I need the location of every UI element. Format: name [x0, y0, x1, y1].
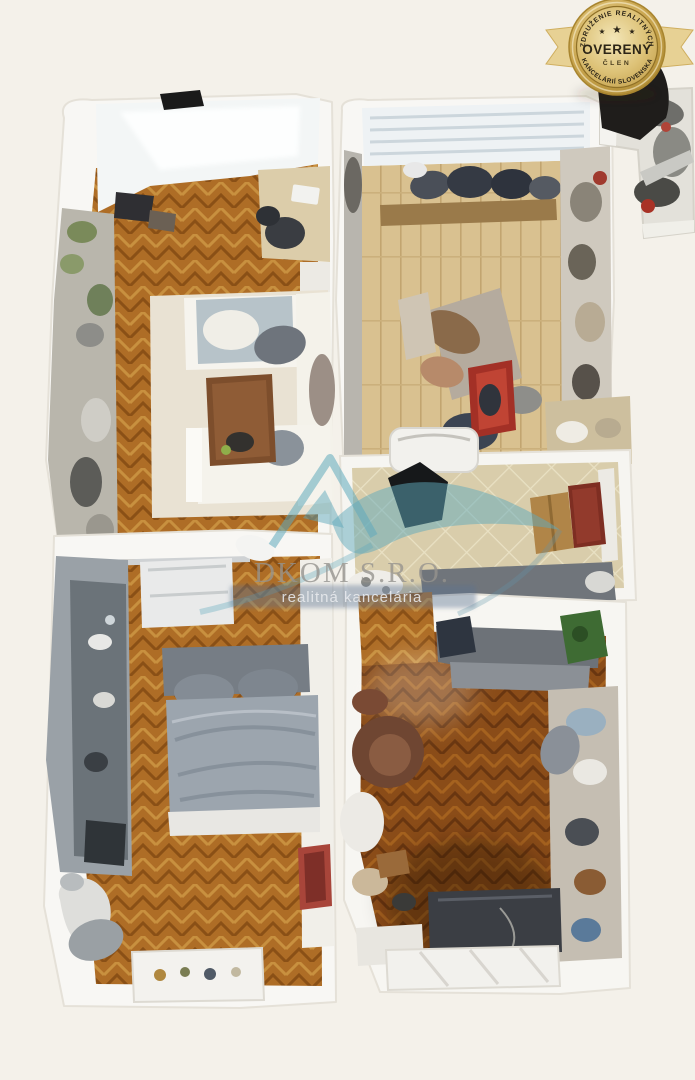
watermark-company: DKOM S.R.O.	[254, 557, 450, 589]
svg-text:★: ★	[612, 24, 622, 36]
badge-subtitle: ČLEN	[603, 58, 632, 67]
pillow	[203, 310, 259, 350]
window-blinds	[362, 102, 590, 166]
shelving-plants	[48, 208, 118, 562]
wardrobe	[560, 146, 612, 436]
washing-machine	[390, 428, 478, 472]
red-object	[298, 844, 332, 910]
red-jacket	[468, 360, 516, 438]
watermark-tagline: realitná kancelária	[282, 589, 423, 606]
svg-text:★: ★	[599, 27, 606, 36]
kitchen-dining	[336, 96, 632, 478]
living-room	[46, 90, 335, 568]
apartment-dollhouse-scan: DKOM S.R.O. realitná kancelária ZDRUŽENI…	[0, 0, 695, 1080]
badge-title: OVERENÝ	[582, 42, 652, 57]
window-sill	[132, 948, 264, 1002]
kitchenette-cabinets	[46, 556, 132, 876]
listing-image: DKOM S.R.O. realitná kancelária ZDRUŽENI…	[0, 0, 695, 1080]
svg-text:★: ★	[629, 27, 636, 36]
second-room	[340, 592, 630, 994]
coffee-table	[206, 374, 276, 466]
verified-badge: ZDRUŽENIE REALITNÝCH KANCELÁRIÍ SLOVENSK…	[546, 0, 693, 101]
bottom-wall	[386, 946, 560, 990]
